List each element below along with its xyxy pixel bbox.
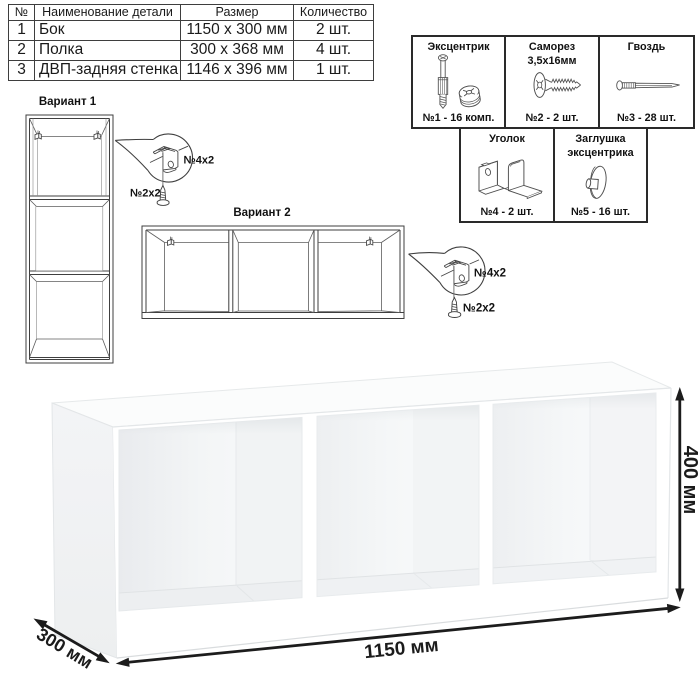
svg-text:Вариант 1: Вариант 1 [39, 96, 97, 108]
svg-text:400 мм: 400 мм [679, 446, 700, 515]
svg-text:1150 мм: 1150 мм [363, 635, 439, 663]
svg-text:№4х2: №4х2 [474, 268, 506, 280]
svg-text:Вариант 2: Вариант 2 [233, 207, 290, 219]
svg-text:№4х2: №4х2 [184, 155, 215, 167]
svg-text:№2х2: №2х2 [130, 188, 161, 200]
svg-text:№2х2: №2х2 [463, 303, 495, 315]
